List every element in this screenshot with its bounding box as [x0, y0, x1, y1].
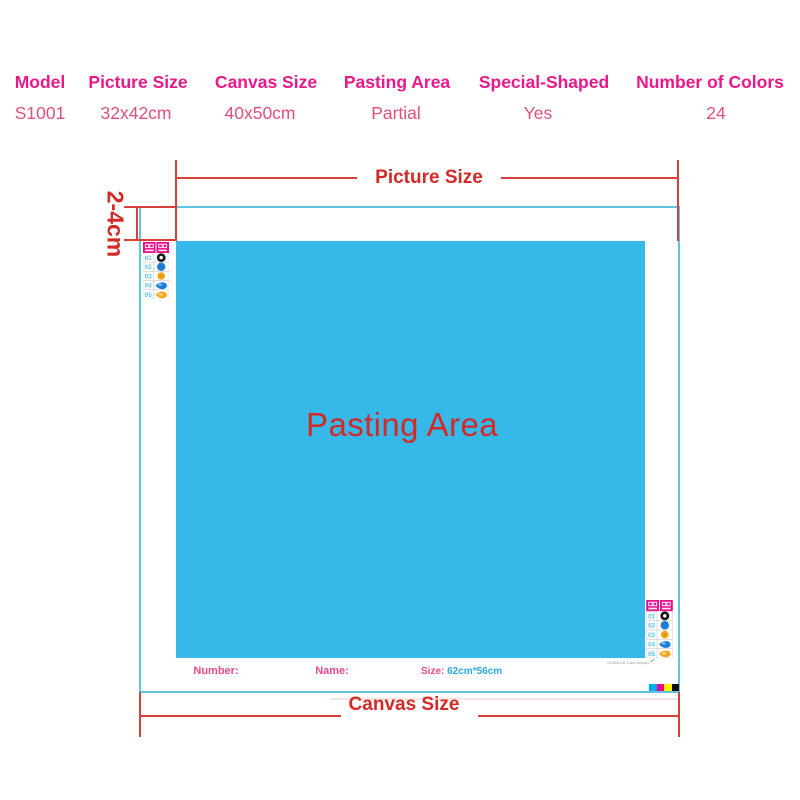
svg-text:04: 04 — [145, 283, 153, 290]
svg-text:01: 01 — [648, 613, 656, 620]
svg-text:02: 02 — [145, 264, 153, 271]
svg-text:05: 05 — [145, 292, 153, 299]
svg-text:02: 02 — [648, 623, 656, 630]
svg-text:01: 01 — [145, 255, 153, 262]
svg-text:04: 04 — [648, 641, 656, 648]
svg-text:03: 03 — [648, 632, 656, 639]
svg-text:03: 03 — [145, 273, 153, 280]
svg-text:05: 05 — [648, 651, 656, 658]
